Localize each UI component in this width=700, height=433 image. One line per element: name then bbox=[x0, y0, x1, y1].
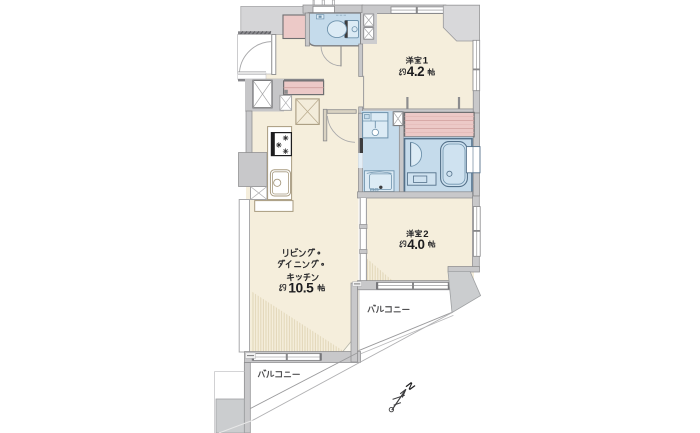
svg-text:10.5: 10.5 bbox=[288, 280, 314, 295]
svg-text:4.0: 4.0 bbox=[407, 237, 424, 252]
svg-text:4.2: 4.2 bbox=[407, 64, 424, 79]
